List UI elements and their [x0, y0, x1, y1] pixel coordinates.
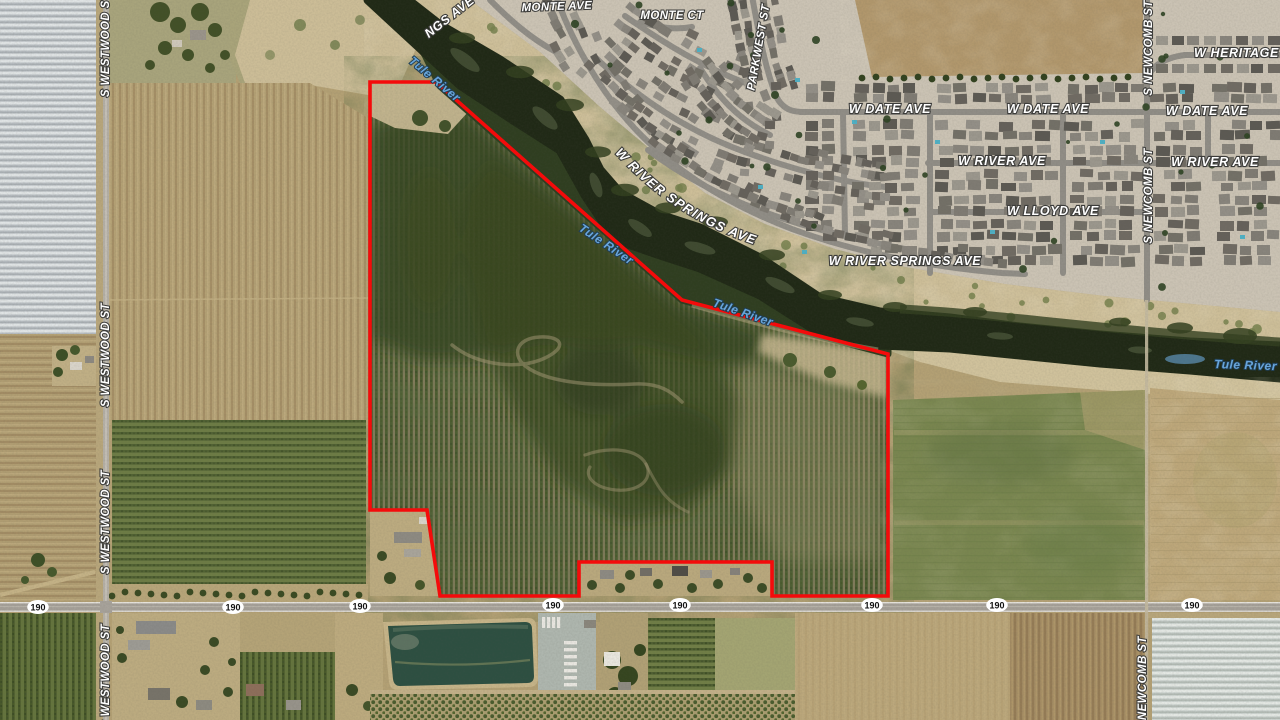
- svg-text:Tule River: Tule River: [1214, 357, 1278, 373]
- svg-text:190: 190: [864, 600, 879, 610]
- svg-text:W LLOYD AVE: W LLOYD AVE: [1007, 204, 1099, 218]
- svg-text:W DATE AVE: W DATE AVE: [1007, 102, 1089, 116]
- svg-text:W RIVER AVE: W RIVER AVE: [1171, 155, 1259, 169]
- svg-text:S NEWCOMB ST: S NEWCOMB ST: [1137, 636, 1149, 720]
- svg-text:S NEWCOMB ST: S NEWCOMB ST: [1143, 148, 1155, 244]
- svg-text:S WESTWOOD ST: S WESTWOOD ST: [100, 623, 112, 720]
- svg-text:S WESTWOOD ST: S WESTWOOD ST: [100, 0, 112, 97]
- svg-text:190: 190: [1184, 600, 1199, 610]
- svg-text:W RIVER SPRINGS AVE: W RIVER SPRINGS AVE: [829, 254, 981, 268]
- svg-text:S WESTWOOD ST: S WESTWOOD ST: [100, 302, 112, 407]
- svg-text:190: 190: [225, 602, 240, 612]
- svg-text:MONTE CT: MONTE CT: [640, 10, 704, 22]
- svg-text:W HERITAGE AVE: W HERITAGE AVE: [1194, 46, 1280, 60]
- svg-text:W DATE AVE: W DATE AVE: [849, 102, 931, 116]
- svg-text:190: 190: [352, 601, 367, 611]
- svg-text:W DATE AVE: W DATE AVE: [1166, 104, 1248, 118]
- svg-text:W RIVER AVE: W RIVER AVE: [958, 154, 1046, 168]
- svg-text:190: 190: [30, 602, 45, 612]
- svg-text:S WESTWOOD ST: S WESTWOOD ST: [100, 469, 112, 574]
- svg-text:MONTE AVE: MONTE AVE: [521, 0, 592, 14]
- svg-text:S NEWCOMB ST: S NEWCOMB ST: [1143, 0, 1155, 96]
- svg-text:190: 190: [672, 600, 687, 610]
- svg-text:190: 190: [989, 600, 1004, 610]
- svg-text:190: 190: [545, 600, 560, 610]
